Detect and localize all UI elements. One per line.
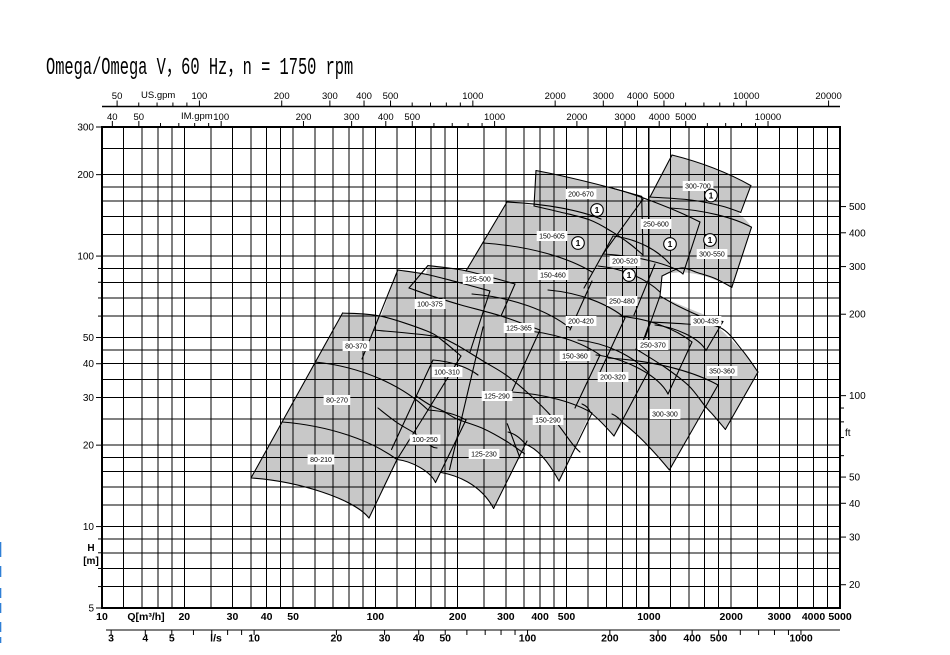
svg-text:200-520: 200-520 xyxy=(612,259,638,266)
svg-text:250-370: 250-370 xyxy=(640,343,666,350)
svg-text:80-370: 80-370 xyxy=(345,344,367,351)
svg-text:200: 200 xyxy=(449,611,467,623)
svg-text:10: 10 xyxy=(83,522,95,533)
svg-text:20: 20 xyxy=(178,611,190,623)
svg-text:400: 400 xyxy=(683,633,701,645)
svg-text:30: 30 xyxy=(83,393,95,404)
svg-text:3000: 3000 xyxy=(768,611,792,623)
svg-text:500: 500 xyxy=(404,112,420,123)
svg-text:4000: 4000 xyxy=(649,112,670,123)
svg-text:300: 300 xyxy=(649,633,667,645)
svg-text:300: 300 xyxy=(849,262,866,273)
svg-text:125-365: 125-365 xyxy=(506,326,532,333)
svg-text:200-670: 200-670 xyxy=(568,192,594,199)
svg-text:125-500: 125-500 xyxy=(465,277,491,284)
svg-text:H: H xyxy=(87,543,94,554)
svg-text:500: 500 xyxy=(710,633,728,645)
svg-text:100: 100 xyxy=(367,611,385,623)
svg-text:l/s: l/s xyxy=(210,633,222,645)
svg-text:1000: 1000 xyxy=(789,633,813,645)
svg-text:200-320: 200-320 xyxy=(600,375,626,382)
svg-text:10: 10 xyxy=(248,633,260,645)
svg-text:80-270: 80-270 xyxy=(326,398,348,405)
svg-text:300-300: 300-300 xyxy=(652,412,678,419)
svg-text:US.gpm: US.gpm xyxy=(141,90,175,101)
svg-text:1000: 1000 xyxy=(462,91,483,102)
svg-text:100-250: 100-250 xyxy=(412,437,438,444)
svg-text:100: 100 xyxy=(191,91,207,102)
svg-text:3: 3 xyxy=(108,633,114,645)
svg-text:50: 50 xyxy=(83,333,95,344)
svg-text:100: 100 xyxy=(213,112,229,123)
svg-text:2000: 2000 xyxy=(545,91,566,102)
svg-text:5000: 5000 xyxy=(828,611,852,623)
svg-text:40: 40 xyxy=(83,359,95,370)
svg-text:1: 1 xyxy=(576,238,581,248)
svg-text:100: 100 xyxy=(77,252,94,263)
svg-text:300-700: 300-700 xyxy=(685,184,711,191)
svg-text:50: 50 xyxy=(439,633,451,645)
svg-text:4000: 4000 xyxy=(802,611,826,623)
svg-text:30: 30 xyxy=(379,633,391,645)
svg-text:200: 200 xyxy=(296,112,312,123)
svg-text:20: 20 xyxy=(849,580,861,591)
svg-text:1: 1 xyxy=(708,235,713,245)
svg-text:350-360: 350-360 xyxy=(709,369,735,376)
svg-text:50: 50 xyxy=(134,112,145,123)
svg-text:200-420: 200-420 xyxy=(568,319,594,326)
svg-text:IM.gpm: IM.gpm xyxy=(181,111,213,122)
svg-text:125-230: 125-230 xyxy=(471,452,497,459)
svg-text:250-600: 250-600 xyxy=(643,222,669,229)
svg-text:40: 40 xyxy=(107,112,118,123)
svg-text:300: 300 xyxy=(497,611,515,623)
svg-text:2000: 2000 xyxy=(720,611,744,623)
svg-text:3000: 3000 xyxy=(614,112,635,123)
svg-text:40: 40 xyxy=(261,611,273,623)
svg-text:5: 5 xyxy=(169,633,175,645)
svg-text:200: 200 xyxy=(849,310,866,321)
svg-text:20: 20 xyxy=(83,441,95,452)
svg-text:30: 30 xyxy=(849,533,861,544)
svg-text:4000: 4000 xyxy=(627,91,648,102)
svg-text:10000: 10000 xyxy=(733,91,759,102)
svg-text:150-460: 150-460 xyxy=(540,273,566,280)
svg-text:500: 500 xyxy=(849,202,866,213)
svg-text:1000: 1000 xyxy=(637,611,661,623)
svg-text:300: 300 xyxy=(77,123,94,134)
svg-text:30: 30 xyxy=(227,611,239,623)
svg-text:500: 500 xyxy=(558,611,576,623)
svg-text:[m]: [m] xyxy=(83,556,99,567)
svg-text:20: 20 xyxy=(331,633,343,645)
svg-text:Q[m³/h]: Q[m³/h] xyxy=(127,611,164,623)
svg-text:400: 400 xyxy=(849,228,866,239)
svg-text:500: 500 xyxy=(383,91,399,102)
svg-text:40: 40 xyxy=(849,499,861,510)
svg-text:400: 400 xyxy=(531,611,549,623)
svg-text:1: 1 xyxy=(668,239,673,249)
svg-text:300-550: 300-550 xyxy=(699,252,725,259)
svg-text:300-435: 300-435 xyxy=(693,319,719,326)
svg-text:40: 40 xyxy=(413,633,425,645)
svg-text:150-605: 150-605 xyxy=(539,234,565,241)
svg-text:200: 200 xyxy=(274,91,290,102)
svg-text:10: 10 xyxy=(96,611,108,623)
svg-text:125-290: 125-290 xyxy=(484,394,510,401)
svg-text:1: 1 xyxy=(709,191,714,201)
svg-text:100: 100 xyxy=(849,391,866,402)
svg-text:5: 5 xyxy=(88,604,94,615)
svg-text:400: 400 xyxy=(378,112,394,123)
svg-text:50: 50 xyxy=(287,611,299,623)
svg-text:20000: 20000 xyxy=(815,91,841,102)
svg-text:1: 1 xyxy=(627,270,632,280)
svg-text:100-375: 100-375 xyxy=(417,302,443,309)
svg-text:ft: ft xyxy=(845,428,851,439)
svg-text:100: 100 xyxy=(519,633,537,645)
svg-text:200: 200 xyxy=(77,170,94,181)
svg-text:300: 300 xyxy=(322,91,338,102)
svg-text:5000: 5000 xyxy=(675,112,696,123)
svg-text:250-480: 250-480 xyxy=(609,299,635,306)
svg-text:5000: 5000 xyxy=(653,91,674,102)
svg-text:150-290: 150-290 xyxy=(535,418,561,425)
svg-text:3000: 3000 xyxy=(593,91,614,102)
svg-text:1000: 1000 xyxy=(484,112,505,123)
svg-text:200: 200 xyxy=(601,633,619,645)
svg-text:10000: 10000 xyxy=(755,112,781,123)
svg-text:100-310: 100-310 xyxy=(434,370,460,377)
svg-text:80-210: 80-210 xyxy=(310,457,332,464)
svg-text:150-360: 150-360 xyxy=(562,354,588,361)
svg-text:50: 50 xyxy=(112,91,123,102)
svg-text:300: 300 xyxy=(344,112,360,123)
svg-text:50: 50 xyxy=(849,473,861,484)
svg-text:400: 400 xyxy=(356,91,372,102)
svg-text:4: 4 xyxy=(142,633,148,645)
svg-text:1: 1 xyxy=(595,205,600,215)
svg-text:2000: 2000 xyxy=(566,112,587,123)
